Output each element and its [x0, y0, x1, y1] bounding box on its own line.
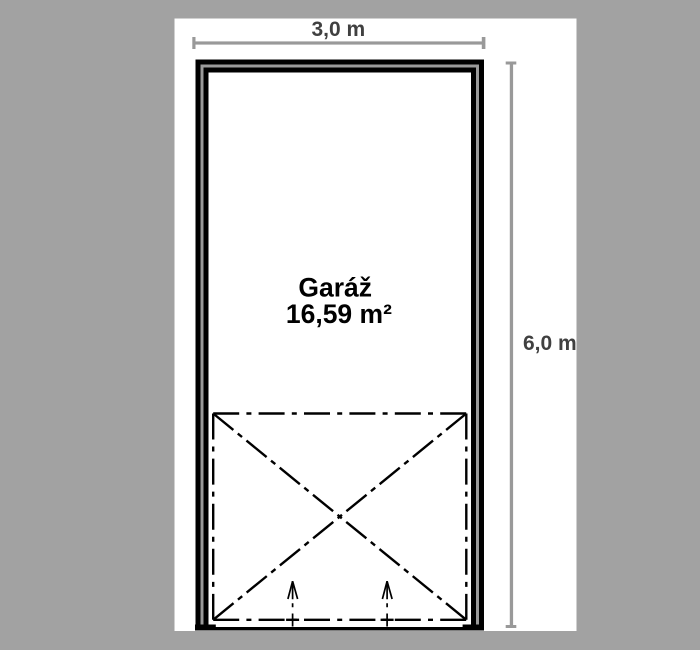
svg-text:16,59 m²: 16,59 m²: [286, 299, 392, 329]
svg-text:Garáž: Garáž: [298, 272, 372, 302]
svg-text:3,0 m: 3,0 m: [311, 18, 365, 41]
svg-text:6,0 m: 6,0 m: [523, 332, 577, 355]
